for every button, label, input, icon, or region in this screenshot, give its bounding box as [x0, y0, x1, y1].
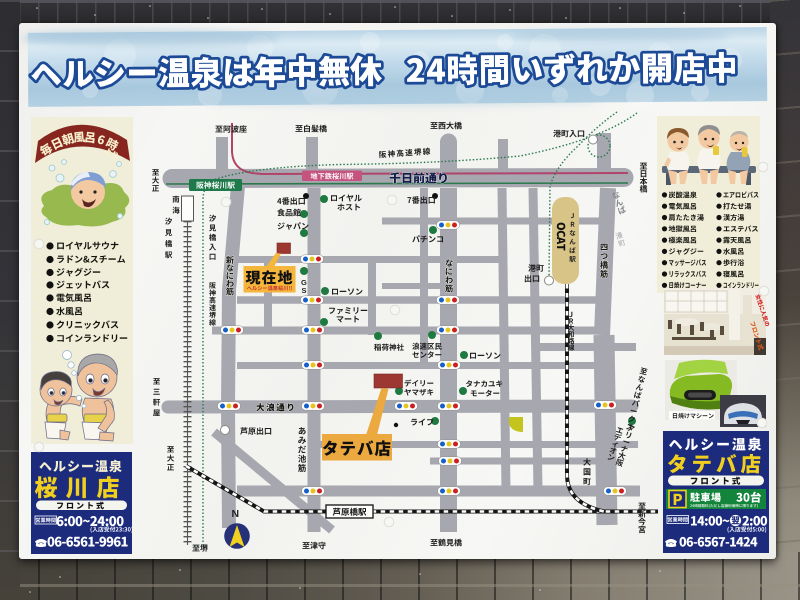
svg-text:N: N: [232, 508, 240, 520]
svg-text:S: S: [302, 286, 307, 295]
